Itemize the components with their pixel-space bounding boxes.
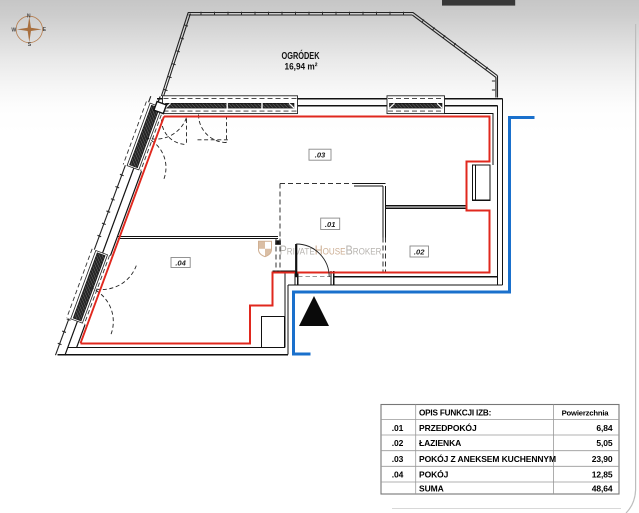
svg-text:48,64: 48,64 [592, 484, 613, 494]
svg-text:.02: .02 [392, 438, 404, 448]
svg-text:.01: .01 [325, 220, 336, 229]
svg-text:.04: .04 [392, 469, 404, 479]
svg-text:5,05: 5,05 [596, 438, 613, 448]
svg-text:.03: .03 [315, 151, 326, 160]
svg-text:S: S [28, 42, 32, 48]
svg-text:POKÓJ Z ANEKSEM KUCHENNYM: POKÓJ Z ANEKSEM KUCHENNYM [419, 453, 556, 464]
svg-text:.02: .02 [414, 248, 425, 257]
svg-text:.01: .01 [392, 423, 404, 433]
svg-text:PRZEDPOKÓJ: PRZEDPOKÓJ [419, 422, 477, 433]
svg-text:.04: .04 [175, 259, 186, 268]
svg-text:E: E [43, 27, 47, 33]
svg-text:W: W [11, 27, 16, 33]
svg-text:N: N [27, 14, 31, 20]
svg-text:POKÓJ: POKÓJ [419, 468, 449, 479]
svg-text:.03: .03 [392, 454, 404, 464]
svg-text:Powierzchnia: Powierzchnia [562, 409, 610, 418]
svg-text:OPIS FUNKCJI IZB:: OPIS FUNKCJI IZB: [419, 409, 491, 418]
svg-text:12,85: 12,85 [592, 469, 613, 479]
svg-text:23,90: 23,90 [592, 454, 613, 464]
svg-text:ŁAZIENKA: ŁAZIENKA [419, 438, 461, 448]
svg-text:16,94 m²: 16,94 m² [285, 61, 318, 72]
svg-text:6,84: 6,84 [596, 423, 613, 433]
svg-text:OGRÓDEK: OGRÓDEK [282, 49, 321, 62]
svg-text:SUMA: SUMA [419, 484, 444, 494]
